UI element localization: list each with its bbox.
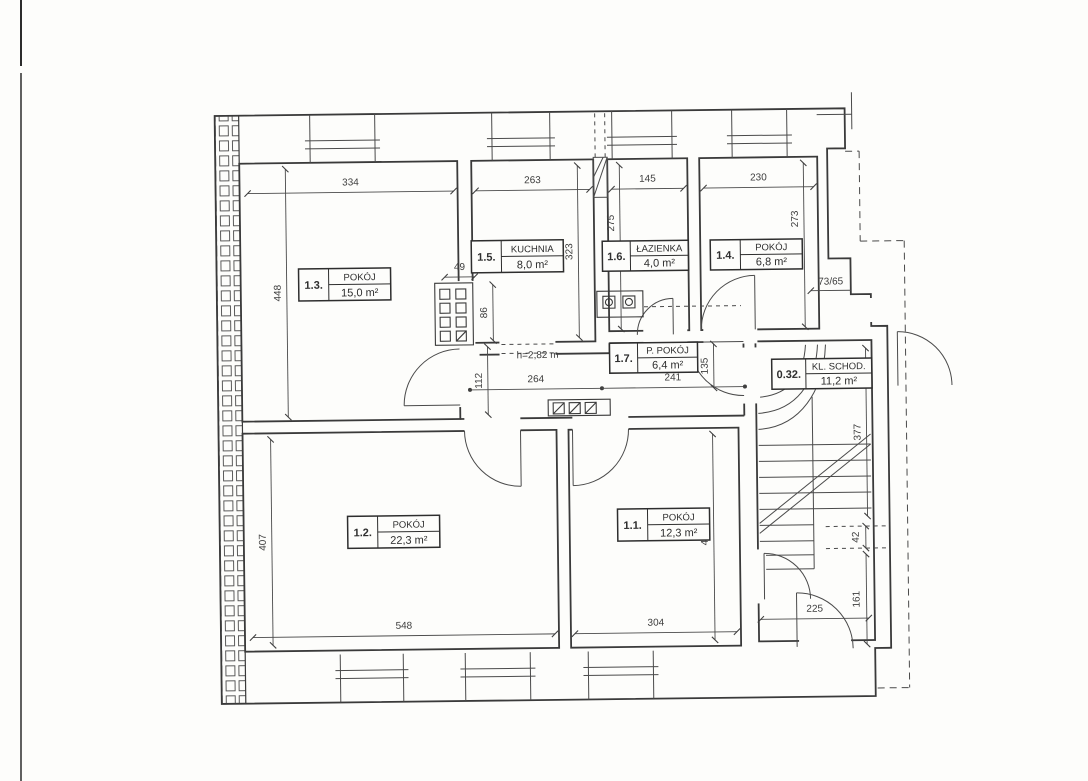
landing-edge-dashed [826,548,886,549]
room-labels: 1.3. POKÓJ 15,0 m² 1.5. KUCHNIA 8,0 m² 1… [298,236,874,549]
svg-text:273: 273 [790,210,801,227]
window-icon [487,112,556,161]
svg-text:1.6.: 1.6. [607,251,626,263]
dim-548: 548 [253,619,555,638]
svg-text:POKÓJ: POKÓJ [392,519,425,530]
svg-text:241: 241 [664,372,681,383]
room-label-1-4: 1.4. POKÓJ 6,8 m² [710,239,802,270]
room-label-1-2: 1.2. POKÓJ 22,3 m² [348,515,440,548]
dim-door-73-65: 73/65 [811,276,851,290]
svg-text:161: 161 [851,590,862,607]
svg-text:POKÓJ: POKÓJ [662,512,695,523]
left-masonry-wall-hatch [215,116,246,704]
svg-text:377: 377 [852,423,863,440]
door-room-1-2 [464,430,521,487]
room-walls [239,156,875,652]
svg-text:112: 112 [474,372,485,389]
window-icon [460,652,536,701]
dim-323: 323 [563,166,579,338]
window-icon [583,651,659,700]
svg-text:73/65: 73/65 [818,276,844,287]
svg-text:407: 407 [258,534,269,551]
room-label-1-5: 1.5. KUCHNIA 8,0 m² [471,240,563,273]
svg-text:86: 86 [479,307,490,319]
svg-text:0.32.: 0.32. [777,369,802,381]
floor-plan-sheet: 334 263 145 230 448 407 [0,0,1088,781]
svg-text:22,3 m²: 22,3 m² [390,534,428,546]
svg-text:1.2.: 1.2. [353,527,372,539]
svg-text:1.1.: 1.1. [623,520,642,532]
svg-text:8,0 m²: 8,0 m² [517,259,549,271]
svg-text:230: 230 [750,172,767,183]
room-label-0-32: 0.32. KL. SCHOD. 11,2 m² [772,358,872,389]
dim-42: 42 [851,526,866,548]
svg-text:263: 263 [524,175,541,186]
dim-145: 145 [611,173,683,189]
room-label-1-3: 1.3. POKÓJ 15,0 m² [299,268,391,301]
svg-text:ŁAZIENKA: ŁAZIENKA [636,243,683,255]
svg-text:KUCHNIA: KUCHNIA [511,244,555,256]
ceiling-height-note: h=2,82 m [517,350,559,362]
svg-text:POKÓJ: POKÓJ [755,242,788,253]
svg-text:12,3 m²: 12,3 m² [660,527,698,539]
svg-text:POKÓJ: POKÓJ [343,272,376,283]
upper-floor-outline-dashed [859,151,860,241]
dim-241: 241 [602,372,747,391]
upper-floor-outline-dashed [904,241,909,688]
door-room-1-1 [572,429,629,486]
door-staircase-lower [764,553,811,600]
svg-text:42: 42 [851,531,862,543]
svg-text:4,0 m²: 4,0 m² [644,257,676,269]
svg-text:6,4 m²: 6,4 m² [652,359,684,371]
wc-fixtures [597,291,643,318]
svg-text:275: 275 [606,214,617,231]
dim-407: 407 [257,439,274,645]
dim-86: 86 [479,285,494,341]
svg-text:1.7.: 1.7. [614,353,633,365]
svg-text:P. POKÓJ: P. POKÓJ [646,345,689,357]
svg-text:1.5.: 1.5. [477,252,496,264]
wall-continuation-ticks [816,92,851,129]
door-room-1-4 [701,275,756,330]
window-icon [727,109,793,158]
svg-text:11,2 m²: 11,2 m² [821,375,858,387]
windows-bottom-wall [335,651,659,703]
svg-text:448: 448 [273,284,284,301]
window-icon [335,654,409,703]
svg-text:548: 548 [395,621,412,632]
svg-text:6,8 m²: 6,8 m² [756,256,788,268]
dim-448: 448 [271,169,288,417]
dim-263: 263 [475,174,589,190]
window-icon [607,110,678,159]
dim-304: 304 [575,617,737,634]
svg-text:KL. SCHOD.: KL. SCHOD. [812,361,866,373]
floor-plan-drawing: 334 263 145 230 448 407 [214,91,955,704]
svg-text:323: 323 [564,243,575,260]
svg-text:1.4.: 1.4. [716,250,735,262]
svg-text:334: 334 [342,177,359,188]
svg-text:135: 135 [700,357,711,374]
dim-49: 49 [444,262,474,277]
room-label-1-7: 1.7. P. POKÓJ 6,4 m² [609,342,697,373]
svg-text:264: 264 [527,374,544,385]
svg-text:15,0 m²: 15,0 m² [341,287,379,299]
window-icon [305,114,381,163]
chimney-flue-dashed [595,113,596,157]
ceiling-beam-dashed [644,306,741,307]
dim-334: 334 [247,176,453,194]
room-label-1-1: 1.1. POKÓJ 12,3 m² [617,508,709,541]
svg-text:145: 145 [639,174,656,185]
windows-top-wall [305,109,793,163]
room-label-1-6: 1.6. ŁAZIENKA 4,0 m² [602,240,688,271]
svg-text:49: 49 [454,262,466,273]
chimney-flue-dashed [605,113,606,157]
landing-edge-dashed [826,526,886,527]
svg-text:1.3.: 1.3. [304,280,323,292]
scanned-page: 334 263 145 230 448 407 [0,0,1088,781]
dim-230: 230 [703,172,813,188]
dim-161: 161 [851,554,867,644]
dashed-lines [499,110,910,693]
svg-text:304: 304 [647,618,664,629]
svg-text:225: 225 [806,604,823,615]
upper-floor-outline-dashed [860,241,904,242]
door-room-1-3 [403,349,460,406]
